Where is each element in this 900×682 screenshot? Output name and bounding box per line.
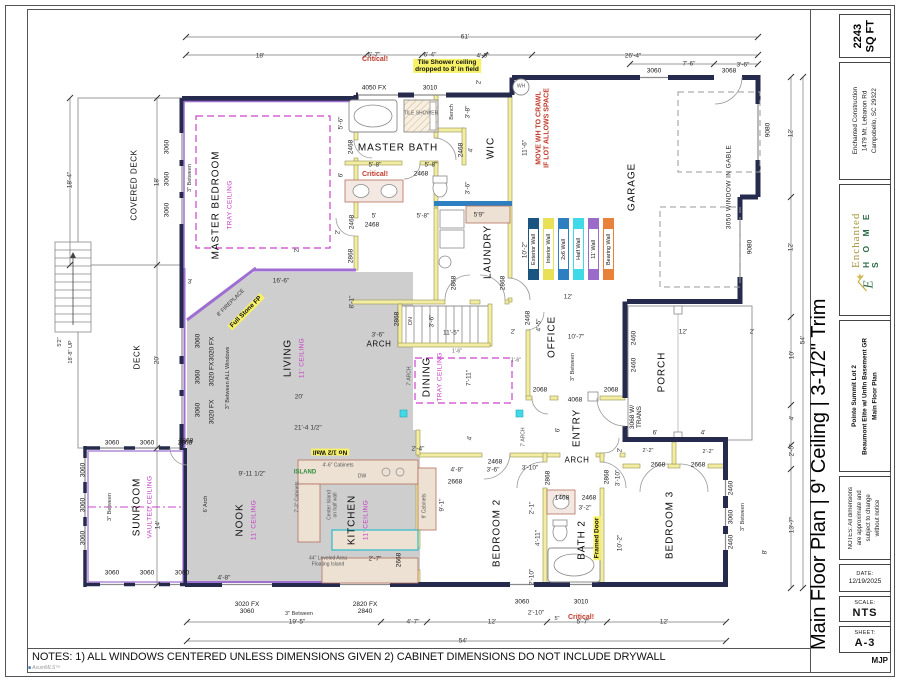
plan-label: 3" Between bbox=[285, 611, 313, 617]
plan-label: DINING bbox=[422, 357, 433, 397]
plan-label: 2'-4" bbox=[412, 445, 425, 452]
plan-label: 3020 FX bbox=[208, 337, 215, 362]
plan-label: 4' bbox=[701, 429, 706, 436]
plan-label: WH bbox=[517, 84, 525, 90]
disclaimer-text: NOTES: All dimensions are approximate an… bbox=[847, 487, 883, 549]
plan-label: 2068 bbox=[604, 386, 618, 393]
plan-label: 2668 bbox=[448, 478, 462, 485]
plan-label: MASTER BEDROOM bbox=[211, 151, 222, 260]
plan-label: 2668 bbox=[651, 461, 665, 468]
plan-label: 3" Between bbox=[740, 503, 746, 531]
legend-item: 2x6 Wall bbox=[558, 218, 569, 280]
plan-label: 14' bbox=[154, 521, 161, 529]
plan-label: 3'-6" bbox=[464, 182, 471, 195]
plan-label: SUNROOM bbox=[132, 478, 143, 537]
plan-label: 2' bbox=[293, 248, 300, 253]
plan-label: 2' bbox=[475, 80, 482, 85]
porch-outline bbox=[628, 306, 752, 440]
plan-label: 3020 FX bbox=[208, 400, 215, 425]
plan-label: 9'-1" bbox=[438, 499, 445, 512]
plan-label: 2'-2" bbox=[703, 449, 714, 455]
plan-label: 2868 bbox=[347, 249, 354, 263]
project-box: Pointe Summit Lot 2 Beaumont Elite w/ Un… bbox=[839, 320, 891, 472]
plan-label: 3" Between bbox=[107, 493, 113, 521]
plan-label: 12' bbox=[564, 293, 572, 300]
plan-label: 3" Between bbox=[570, 353, 576, 381]
plan-label: 4'-11" bbox=[534, 530, 541, 546]
plan-label: 2' bbox=[750, 328, 755, 335]
plan-label: 10' bbox=[788, 351, 795, 359]
plan-label: 4'-7" bbox=[407, 618, 420, 625]
watermark: ■ AxumMLS™ bbox=[28, 665, 60, 671]
plan-label: 3' bbox=[188, 278, 193, 285]
plan-label: 3060 bbox=[79, 498, 86, 512]
plan-label: PORCH bbox=[657, 352, 668, 393]
plan-label: 3'-6" bbox=[487, 466, 500, 473]
plan-label: 3'-2" bbox=[579, 504, 592, 511]
legend-item: Interior Wall bbox=[543, 218, 554, 280]
plan-label: MASTER BATH bbox=[358, 143, 438, 154]
plan-label: 2460 bbox=[630, 331, 637, 345]
plan-label: 5'-6" bbox=[337, 117, 344, 130]
plan-label: 5'2" bbox=[57, 337, 63, 346]
plan-label: 2868 bbox=[499, 276, 506, 290]
plan-label: 2668 bbox=[691, 461, 705, 468]
plan-label: 2460 bbox=[727, 535, 734, 549]
area-text: 2243 SQ FT bbox=[852, 20, 877, 52]
plan-label: ISLAND bbox=[294, 470, 316, 477]
plan-label: 3020 FX 3060 bbox=[235, 601, 260, 615]
plan-label: 2'-2" bbox=[643, 448, 654, 454]
date-value: 12/19/2025 bbox=[849, 578, 882, 585]
plan-label: 12' bbox=[679, 328, 687, 335]
logo-house-icon: E bbox=[852, 271, 878, 293]
plan-label: 5'-8" bbox=[369, 161, 382, 168]
svg-text:E: E bbox=[860, 280, 875, 289]
plan-label: 12' bbox=[660, 618, 668, 625]
plan-label: OFFICE bbox=[547, 316, 558, 358]
plan-label: 7' ARCH bbox=[521, 427, 527, 446]
plan-label: 2468 bbox=[524, 311, 531, 325]
plan-label: 3060 bbox=[727, 510, 734, 524]
scale-label: SCALE: bbox=[854, 600, 875, 606]
plan-label: 3'-6" bbox=[372, 331, 385, 338]
plan-label: 4' bbox=[788, 416, 795, 421]
plan-label: 3060 bbox=[163, 203, 170, 217]
project-text: Pointe Summit Lot 2 Beaumont Elite w/ Un… bbox=[850, 338, 881, 455]
plan-label: LAUNDRY bbox=[483, 225, 494, 279]
scale-value: NTS bbox=[853, 607, 878, 619]
plan-label: 3050 WINDOW IN GABLE bbox=[725, 145, 732, 230]
plan-label: BATH 2 bbox=[577, 520, 588, 560]
plan-label: 44" Leveled Area Floating Island bbox=[309, 557, 347, 568]
plan-label: 3" Between bbox=[187, 164, 193, 192]
plan-label: 2468 bbox=[582, 494, 596, 501]
date-label: DATE: bbox=[856, 571, 873, 577]
plan-label: TILE SHOWER bbox=[404, 111, 438, 117]
sheet-title: Main Floor Plan | 9' Ceiling | 3-1/2" Tr… bbox=[808, 368, 838, 650]
plan-label: 3" Between ALL Windows bbox=[225, 347, 231, 410]
plan-label: 2468 bbox=[348, 215, 355, 229]
plan-label: 7'-3" Cabinets bbox=[295, 481, 301, 512]
watermark-text: AxumMLS™ bbox=[32, 665, 60, 671]
plan-label: 10'-2" bbox=[616, 535, 623, 552]
legend-item: Bearing Wall bbox=[603, 218, 614, 280]
2x6-wall bbox=[434, 201, 512, 206]
plan-label: 6' bbox=[554, 428, 561, 433]
plan-label: BEDROOM 2 bbox=[492, 499, 503, 567]
legend-label: Interior Wall bbox=[546, 234, 552, 263]
sheet-label: SHEET: bbox=[854, 630, 875, 636]
plan-label: 9080 bbox=[746, 240, 753, 254]
logo-sub: H O M E S bbox=[862, 208, 881, 268]
plan-label: 5'9" bbox=[474, 211, 485, 218]
plan-label: Center Island on half wall bbox=[328, 490, 339, 520]
legend-item: Exterior Wall bbox=[528, 218, 539, 280]
plan-label: 4050 FX bbox=[362, 84, 387, 91]
plan-label: 4'-8" bbox=[451, 466, 464, 473]
plan-label: 2868 bbox=[603, 470, 610, 484]
plan-label: GARAGE bbox=[627, 163, 638, 211]
logo-name: Enchanted bbox=[850, 208, 862, 268]
plan-label: 12' bbox=[787, 243, 794, 251]
notes-divider bbox=[27, 648, 811, 649]
plan-label: ARCH bbox=[366, 341, 391, 350]
plan-label: 13'-7" bbox=[788, 517, 795, 534]
date-box: DATE: 12/19/2025 bbox=[839, 564, 891, 592]
plan-label: 3068 bbox=[722, 67, 736, 74]
plan-label: Framed Door bbox=[593, 516, 600, 560]
plan-label: 3010 bbox=[574, 598, 588, 605]
plan-label: 20' bbox=[153, 356, 160, 364]
plan-label: 3060 bbox=[79, 531, 86, 545]
plan-label: 2'-7" bbox=[369, 555, 382, 562]
legend-label: 11' Wall bbox=[591, 240, 597, 259]
plan-label: 6' bbox=[337, 173, 344, 178]
plan-label: 3020 FX bbox=[208, 362, 215, 387]
plan-label: BEDROOM 3 bbox=[665, 491, 676, 559]
drawing-sheet: 61'18'5'-7"6'-4"4'-9"26'-4"7'-6"3'-6"306… bbox=[0, 0, 900, 682]
company-logo: E Enchanted H O M E S bbox=[850, 208, 881, 292]
plan-label: TRAY CEILING bbox=[226, 180, 233, 229]
legend-label: Exterior Wall bbox=[531, 234, 537, 265]
plan-label: 9'-11 1/2" bbox=[239, 470, 266, 477]
plan-label: 21'-4 1/2" bbox=[294, 424, 321, 431]
sheet-notes: NOTES: 1) ALL WINDOWS CENTERED UNLESS DI… bbox=[32, 651, 666, 663]
plan-label: 18'-4" bbox=[66, 172, 73, 189]
scale-box: SCALE: NTS bbox=[839, 596, 891, 622]
title-block: 2243 SQ FT Enchanted Construction 1479 M… bbox=[839, 14, 891, 657]
plan-label: MOVE WH TO CRAWL IF LOT ALLOWS SPACE bbox=[535, 88, 550, 168]
company-text: Enchanted Construction 1479 Mt. Lebanon … bbox=[851, 87, 879, 154]
plan-label: 2068 bbox=[533, 386, 547, 393]
plan-label: VAULTED CEILING bbox=[146, 476, 153, 539]
plan-label: 3'-8" bbox=[464, 106, 471, 119]
plan-label: 3060 bbox=[194, 403, 201, 417]
plan-label: 11' CEILING bbox=[298, 338, 305, 378]
plan-label: 2868 bbox=[178, 439, 192, 446]
plan-label: 5" bbox=[554, 616, 559, 622]
plan-label: 3060 bbox=[194, 334, 201, 348]
plan-label: 7' ARCH bbox=[407, 366, 413, 385]
plan-label: ARCH bbox=[564, 457, 589, 466]
area-box: 2243 SQ FT bbox=[839, 14, 891, 58]
plan-label: 3060 bbox=[515, 598, 529, 605]
plan-label: 4'-6" Cabinets bbox=[322, 463, 353, 469]
plan-label: Critical! bbox=[362, 171, 388, 179]
plan-label: 26'-4" bbox=[625, 52, 642, 59]
plan-label: DECK bbox=[134, 345, 143, 370]
plan-label: 3'-6" bbox=[737, 61, 750, 68]
plan-label: NOOK bbox=[235, 503, 246, 536]
disclaimer-box: NOTES: All dimensions are approximate an… bbox=[839, 476, 891, 560]
plan-label: 5'-8" bbox=[417, 212, 430, 219]
legend-label: 2x6 Wall bbox=[561, 239, 567, 260]
stairs-dn bbox=[398, 306, 490, 344]
plan-label: 16'-6" bbox=[273, 277, 290, 284]
plan-label: ENTRY bbox=[572, 409, 583, 447]
plan-label: 5' bbox=[372, 212, 377, 219]
logo-box: E Enchanted H O M E S bbox=[839, 184, 891, 316]
plan-label: 3060 bbox=[140, 439, 154, 446]
plan-label: 4'-5" bbox=[535, 319, 542, 332]
plan-label: 2460 bbox=[727, 481, 734, 495]
plan-label: 11' CEILING bbox=[250, 500, 257, 540]
plan-label: 2'-10" bbox=[528, 569, 535, 586]
plan-label: 6' Arch bbox=[203, 496, 209, 513]
plan-label: 12' bbox=[488, 618, 496, 625]
plan-label: 3'-6" bbox=[428, 315, 435, 328]
plan-label: 6' bbox=[653, 429, 658, 436]
plan-label: Critical! bbox=[362, 56, 388, 64]
plan-label: 3060 bbox=[163, 140, 170, 154]
plan-label: 1468 bbox=[555, 494, 569, 501]
plan-label: 2868 bbox=[544, 471, 551, 485]
plan-label: 4068 bbox=[568, 396, 582, 403]
plan-label: 3'-10" bbox=[522, 464, 539, 471]
plan-label: 18'-8" UP bbox=[68, 340, 74, 363]
plan-label: 10'-7" bbox=[568, 333, 585, 340]
sheet-value: A-3 bbox=[855, 637, 876, 649]
plan-label: 9080 bbox=[764, 123, 771, 137]
legend-item: Half Wall bbox=[573, 218, 584, 280]
plan-label: 3010 bbox=[423, 84, 437, 91]
plan-label: 2468 bbox=[365, 221, 379, 228]
plan-label: 2468 bbox=[488, 458, 502, 465]
plan-label: 3060 bbox=[105, 439, 119, 446]
plan-label: 2668 bbox=[395, 553, 402, 567]
plan-label: 8' bbox=[761, 550, 768, 555]
plan-label: 11' CEILING bbox=[362, 500, 369, 540]
plan-label: 5'-8" bbox=[425, 161, 438, 168]
legend-label: Bearing Wall bbox=[606, 234, 612, 265]
plan-label: 7'-6" bbox=[683, 60, 696, 67]
plan-label: 2468 bbox=[414, 170, 428, 177]
plan-label: 1'-6" bbox=[452, 349, 462, 355]
plan-label: 19'-5" bbox=[289, 618, 306, 625]
plan-label: 5'-7" bbox=[577, 618, 590, 625]
plan-label: COVERED DECK bbox=[131, 149, 140, 220]
plan-label: 2'-10" bbox=[528, 609, 545, 616]
floor-plan-drawing bbox=[0, 0, 900, 682]
plan-label: No 1/2 Wall bbox=[311, 448, 349, 455]
plan-label: Tile Shower ceiling dropped to 8' in fie… bbox=[413, 59, 481, 73]
plan-label: 18' bbox=[256, 52, 264, 59]
plan-label: 11'-5" bbox=[443, 329, 459, 336]
wall-legend: Exterior WallInterior Wall2x6 WallHalf W… bbox=[528, 218, 614, 280]
plan-label: 2868 bbox=[450, 276, 457, 290]
plan-label: 12' bbox=[787, 129, 794, 137]
plan-label: KITCHEN bbox=[347, 495, 358, 545]
plan-label: 3060 bbox=[105, 569, 119, 576]
drafter-initials: MJP bbox=[872, 656, 888, 665]
plan-label: 9' Cabinets bbox=[422, 494, 428, 519]
plan-label: 3060 bbox=[79, 463, 86, 477]
legend-item: 11' Wall bbox=[588, 218, 599, 280]
plan-label: 61' bbox=[461, 33, 469, 40]
plan-label: 1'-6" bbox=[511, 358, 521, 364]
plan-label: 2'-1" bbox=[528, 502, 535, 515]
plan-label: 8'-1" bbox=[348, 296, 355, 309]
plan-label: 4'-8" bbox=[218, 574, 231, 581]
plan-label: 3060 bbox=[194, 370, 201, 384]
plan-label: 18' bbox=[153, 178, 160, 186]
plan-label: DW bbox=[358, 474, 366, 480]
plan-label: 2' bbox=[616, 448, 623, 453]
plan-label: 4' bbox=[466, 436, 473, 441]
plan-label: 20' bbox=[295, 393, 303, 400]
half-walls bbox=[400, 410, 523, 417]
plan-label: 2' bbox=[334, 230, 341, 235]
plan-label: 2' bbox=[511, 328, 516, 335]
plan-label: DN bbox=[408, 317, 414, 325]
plan-label: 3068 W/ TRANS bbox=[629, 405, 643, 429]
plan-label: 6'-4" bbox=[424, 51, 437, 58]
plan-label: 3060 bbox=[140, 569, 154, 576]
plan-label: 4' bbox=[467, 148, 474, 153]
deck-stairs bbox=[55, 242, 91, 332]
plan-label: TRAY CEILING bbox=[436, 352, 443, 401]
plan-label: 2468 bbox=[457, 143, 464, 157]
plan-label: 3060 bbox=[647, 67, 661, 74]
legend-label: Half Wall bbox=[576, 238, 582, 260]
plan-label: 3'-10" bbox=[614, 470, 621, 487]
plan-label: 2460 bbox=[630, 358, 637, 372]
plan-label: 2468 bbox=[347, 140, 354, 154]
company-box: Enchanted Construction 1479 Mt. Lebanon … bbox=[839, 62, 891, 180]
plan-label: 3060 bbox=[163, 172, 170, 186]
plan-label: 2868 bbox=[393, 312, 400, 326]
plan-label: 2'-5" bbox=[788, 444, 795, 457]
plan-label: 3060 bbox=[175, 569, 189, 576]
plan-label: Bench bbox=[449, 104, 455, 120]
plan-label: 54' bbox=[799, 336, 806, 344]
plan-label: LIVING bbox=[283, 339, 294, 377]
plan-label: 7'-11" bbox=[465, 370, 472, 386]
sheet-box: SHEET: A-3 bbox=[839, 626, 891, 653]
plan-label: 2820 FX 2840 bbox=[353, 601, 378, 615]
plan-label: 11'-6" bbox=[521, 140, 528, 156]
plan-label: 54' bbox=[459, 637, 467, 644]
plan-label: WIC bbox=[486, 137, 497, 159]
